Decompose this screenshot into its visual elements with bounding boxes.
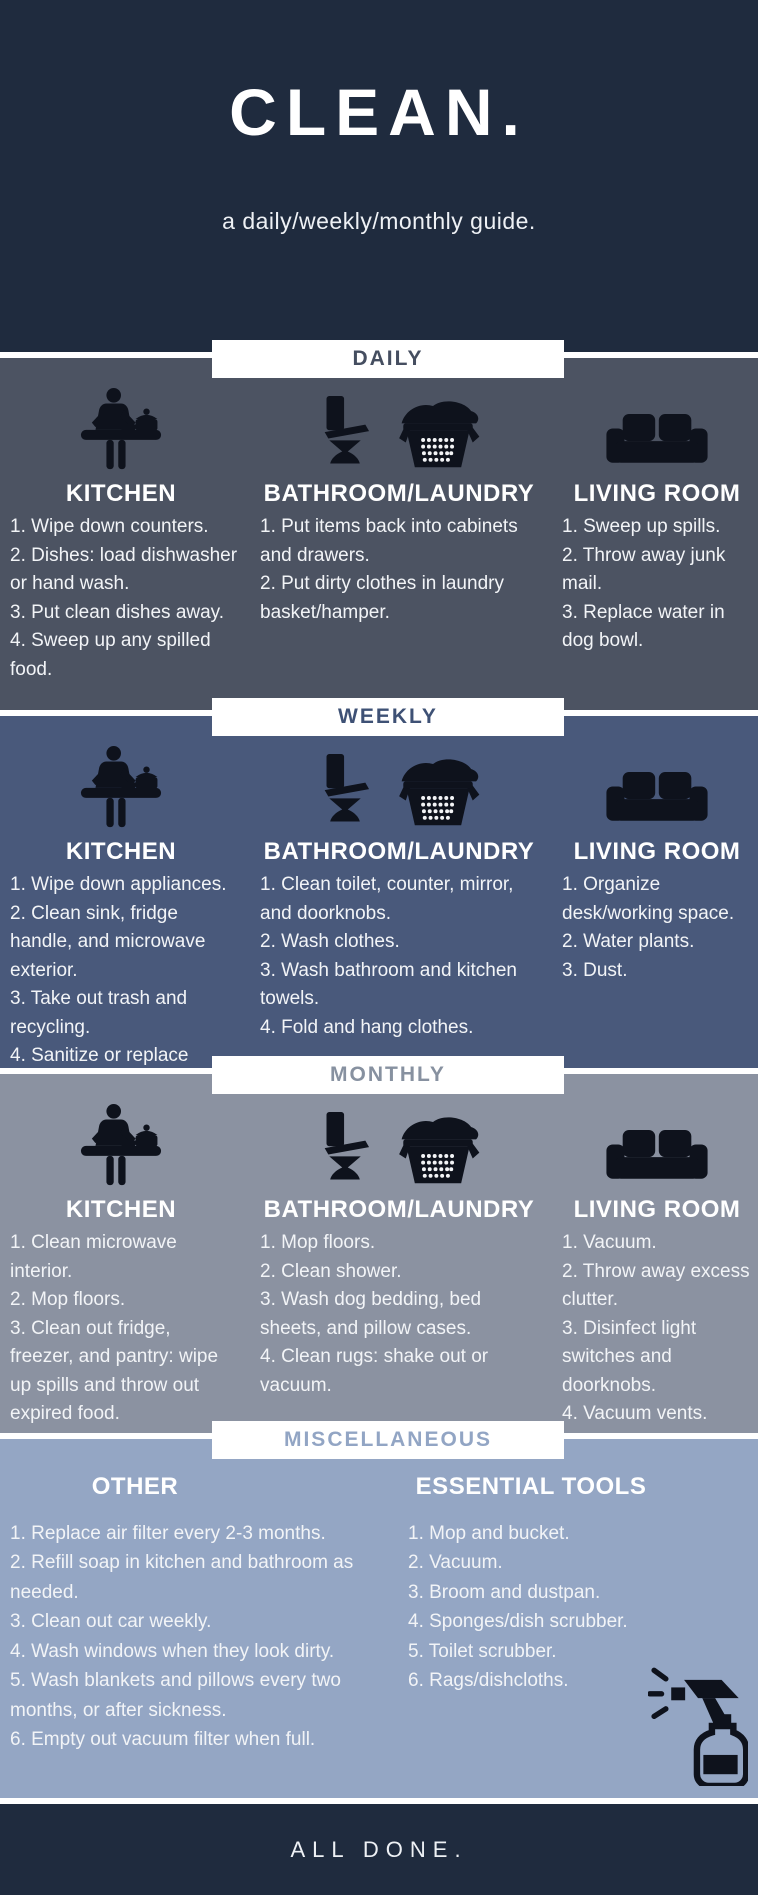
task-list: 1. Sweep up spills. 2. Throw away junk m… xyxy=(556,513,758,656)
task-list: 1. Clean microwave interior. 2. Mop floo… xyxy=(0,1229,242,1429)
task-item: 2. Put dirty clothes in laundry basket/h… xyxy=(260,570,542,627)
other-column: OTHER 1. Replace air filter every 2-3 mo… xyxy=(0,1473,400,1755)
task-item: 3. Clean out fridge, freezer, and pantry… xyxy=(10,1315,238,1429)
daily-banner-label: DAILY xyxy=(352,347,423,371)
daily-livingroom-column: LIVING ROOM 1. Sweep up spills. 2. Throw… xyxy=(556,386,758,684)
daily-columns: KITCHEN 1. Wipe down counters. 2. Dishes… xyxy=(0,358,758,684)
task-item: 1. Clean microwave interior. xyxy=(10,1229,238,1286)
task-list: 1. Vacuum. 2. Throw away excess clutter.… xyxy=(556,1229,758,1429)
toilet-icon xyxy=(317,754,373,828)
task-item: 4. Clean rugs: shake out or vacuum. xyxy=(260,1343,542,1400)
task-item: 1. Sweep up spills. xyxy=(562,513,756,542)
laundry-basket-icon xyxy=(395,400,481,470)
task-item: 6. Empty out vacuum filter when full. xyxy=(10,1725,398,1754)
weekly-bathroom-column: BATHROOM/LAUNDRY 1. Clean toilet, counte… xyxy=(242,744,556,1099)
task-item: 5. Toilet scrubber. xyxy=(408,1637,756,1666)
weekly-banner: WEEKLY xyxy=(212,698,564,736)
task-item: 2. Clean sink, fridge handle, and microw… xyxy=(10,900,238,986)
monthly-livingroom-column: LIVING ROOM 1. Vacuum. 2. Throw away exc… xyxy=(556,1102,758,1429)
miscellaneous-banner: MISCELLANEOUS xyxy=(212,1421,564,1459)
task-item: 3. Take out trash and recycling. xyxy=(10,985,238,1042)
monthly-kitchen-column: KITCHEN 1. Clean microwave interior. 2. … xyxy=(0,1102,242,1429)
column-title: KITCHEN xyxy=(0,838,242,866)
task-item: 3. Clean out car weekly. xyxy=(10,1607,398,1636)
task-item: 3. Disinfect light switches and doorknob… xyxy=(562,1315,756,1401)
section-monthly: MONTHLY KITCHEN 1. Clean microwave inter… xyxy=(0,1068,758,1433)
task-list: 1. Mop floors. 2. Clean shower. 3. Wash … xyxy=(242,1229,556,1400)
task-item: 5. Wash blankets and pillows every two m… xyxy=(10,1666,398,1725)
column-title: KITCHEN xyxy=(0,1196,242,1224)
weekly-livingroom-column: LIVING ROOM 1. Organize desk/working spa… xyxy=(556,744,758,1099)
header: CLEAN. a daily/weekly/monthly guide. xyxy=(0,0,758,352)
daily-bathroom-column: BATHROOM/LAUNDRY 1. Put items back into … xyxy=(242,386,556,684)
section-daily: DAILY KITCHEN 1. Wipe down counters. 2. … xyxy=(0,352,758,710)
daily-banner: DAILY xyxy=(212,340,564,378)
laundry-basket-icon xyxy=(395,758,481,828)
task-item: 3. Wash bathroom and kitchen towels. xyxy=(260,957,542,1014)
task-item: 3. Wash dog bedding, bed sheets, and pil… xyxy=(260,1286,542,1343)
task-item: 1. Mop floors. xyxy=(260,1229,542,1258)
task-item: 3. Replace water in dog bowl. xyxy=(562,599,756,656)
task-list: 1. Clean toilet, counter, mirror, and do… xyxy=(242,871,556,1042)
laundry-basket-icon xyxy=(395,1116,481,1186)
cleaning-infographic: CLEAN. a daily/weekly/monthly guide. DAI… xyxy=(0,0,758,1895)
weekly-columns: KITCHEN 1. Wipe down appliances. 2. Clea… xyxy=(0,716,758,1099)
spray-bottle-icon xyxy=(648,1666,748,1786)
miscellaneous-columns: OTHER 1. Replace air filter every 2-3 mo… xyxy=(0,1439,758,1755)
task-item: 1. Clean toilet, counter, mirror, and do… xyxy=(260,871,542,928)
task-item: 1. Mop and bucket. xyxy=(408,1519,756,1548)
footer-text: ALL DONE. xyxy=(290,1837,467,1863)
task-item: 2. Refill soap in kitchen and bathroom a… xyxy=(10,1548,398,1607)
column-title: LIVING ROOM xyxy=(556,1196,758,1224)
task-item: 4. Sponges/dish scrubber. xyxy=(408,1607,756,1636)
couch-icon xyxy=(604,772,710,828)
task-list: 1. Wipe down counters. 2. Dishes: load d… xyxy=(0,513,242,684)
monthly-banner-label: MONTHLY xyxy=(330,1063,446,1087)
task-item: 1. Replace air filter every 2-3 months. xyxy=(10,1519,398,1548)
toilet-icon xyxy=(317,1112,373,1186)
task-item: 2. Water plants. xyxy=(562,928,756,957)
task-item: 3. Broom and dustpan. xyxy=(408,1578,756,1607)
column-title: OTHER xyxy=(0,1473,270,1501)
column-title: LIVING ROOM xyxy=(556,838,758,866)
task-item: 4. Vacuum vents. xyxy=(562,1400,756,1429)
task-item: 4. Fold and hang clothes. xyxy=(260,1014,542,1043)
monthly-columns: KITCHEN 1. Clean microwave interior. 2. … xyxy=(0,1074,758,1429)
column-title: LIVING ROOM xyxy=(556,480,758,508)
task-item: 1. Wipe down counters. xyxy=(10,513,238,542)
couch-icon xyxy=(604,1130,710,1186)
miscellaneous-banner-label: MISCELLANEOUS xyxy=(284,1428,492,1452)
daily-kitchen-column: KITCHEN 1. Wipe down counters. 2. Dishes… xyxy=(0,386,242,684)
task-item: 2. Wash clothes. xyxy=(260,928,542,957)
task-item: 4. Sweep up any spilled food. xyxy=(10,627,238,684)
column-title: BATHROOM/LAUNDRY xyxy=(242,480,556,508)
couch-icon xyxy=(604,414,710,470)
task-item: 1. Put items back into cabinets and draw… xyxy=(260,513,542,570)
column-title: BATHROOM/LAUNDRY xyxy=(242,1196,556,1224)
task-item: 3. Dust. xyxy=(562,957,756,986)
section-miscellaneous: MISCELLANEOUS OTHER 1. Replace air filte… xyxy=(0,1433,758,1798)
monthly-bathroom-column: BATHROOM/LAUNDRY 1. Mop floors. 2. Clean… xyxy=(242,1102,556,1429)
column-title: KITCHEN xyxy=(0,480,242,508)
cooking-table-icon xyxy=(74,388,168,470)
task-list: 1. Put items back into cabinets and draw… xyxy=(242,513,556,627)
task-item: 1. Organize desk/working space. xyxy=(562,871,756,928)
task-item: 2. Throw away excess clutter. xyxy=(562,1258,756,1315)
column-title: BATHROOM/LAUNDRY xyxy=(242,838,556,866)
weekly-kitchen-column: KITCHEN 1. Wipe down appliances. 2. Clea… xyxy=(0,744,242,1099)
toilet-icon xyxy=(317,396,373,470)
task-item: 1. Wipe down appliances. xyxy=(10,871,238,900)
page-title: CLEAN. xyxy=(0,0,758,150)
monthly-banner: MONTHLY xyxy=(212,1056,564,1094)
section-weekly: WEEKLY KITCHEN 1. Wipe down appliances. … xyxy=(0,710,758,1068)
task-item: 2. Vacuum. xyxy=(408,1548,756,1577)
footer: ALL DONE. xyxy=(0,1798,758,1895)
cooking-table-icon xyxy=(74,1104,168,1186)
task-list: 1. Wipe down appliances. 2. Clean sink, … xyxy=(0,871,242,1099)
column-title: ESSENTIAL TOOLS xyxy=(406,1473,656,1501)
task-item: 2. Clean shower. xyxy=(260,1258,542,1287)
weekly-banner-label: WEEKLY xyxy=(338,705,438,729)
cooking-table-icon xyxy=(74,746,168,828)
task-item: 2. Dishes: load dishwasher or hand wash. xyxy=(10,542,238,599)
task-list: 1. Replace air filter every 2-3 months. … xyxy=(0,1519,400,1755)
task-item: 2. Throw away junk mail. xyxy=(562,542,756,599)
task-item: 2. Mop floors. xyxy=(10,1286,238,1315)
page-subtitle: a daily/weekly/monthly guide. xyxy=(0,208,758,235)
task-item: 3. Put clean dishes away. xyxy=(10,599,238,628)
task-item: 1. Vacuum. xyxy=(562,1229,756,1258)
task-item: 4. Wash windows when they look dirty. xyxy=(10,1637,398,1666)
task-list: 1. Organize desk/working space. 2. Water… xyxy=(556,871,758,985)
